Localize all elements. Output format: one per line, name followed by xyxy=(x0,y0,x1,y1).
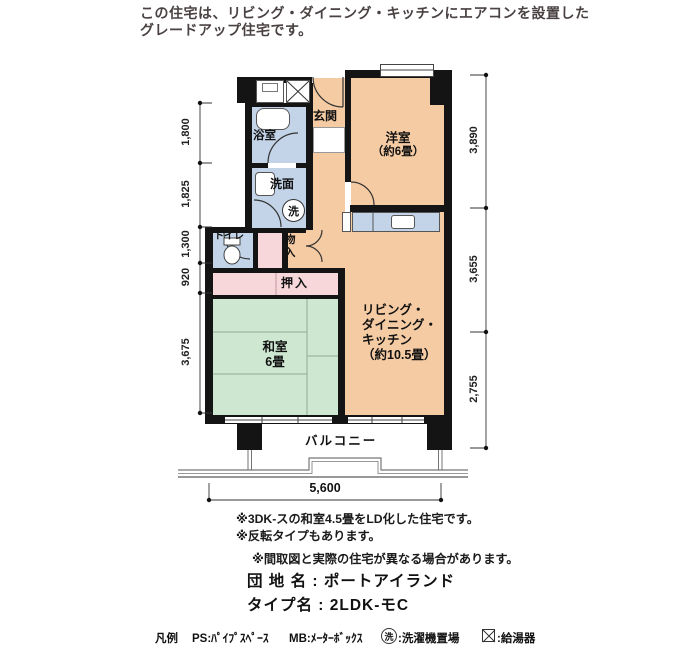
pillar-bottom-right xyxy=(427,420,452,450)
wall-segment xyxy=(250,228,306,233)
label-oshiire: 押入 xyxy=(281,276,309,290)
bathtub xyxy=(256,108,290,130)
dim-right-2: 3,655 xyxy=(468,247,480,291)
note-1: ※3DK-スの和室4.5畳をLD化した住宅です。 xyxy=(236,509,479,527)
legend-ps: PS:ﾊﾟｲﾌﾟｽﾍﾟｰｽ xyxy=(192,630,269,646)
label-washroom: 洗面 xyxy=(270,177,294,191)
dim-right-3: 2,755 xyxy=(468,367,480,411)
legend-water-heater: :給湯器 xyxy=(497,630,535,646)
estate-name: 団 地 名 : ポートアイランド xyxy=(247,569,455,591)
dim-bottom: 5,600 xyxy=(297,481,353,496)
legend-mb: MB:ﾒｰﾀｰﾎﾞｯｸｽ xyxy=(289,630,362,646)
water-heater-box xyxy=(286,80,310,103)
wall-tatami-ldk xyxy=(338,268,345,420)
dim-right-1: 3,890 xyxy=(468,118,480,162)
pipe-space-box xyxy=(342,212,351,232)
label-toilet: トイレ xyxy=(214,231,244,243)
wall-left-lower xyxy=(205,227,213,422)
label-bath: 浴室 xyxy=(253,130,276,144)
balcony-railing xyxy=(178,450,468,477)
entrance-floor xyxy=(313,127,345,153)
label-storage: 物 入 xyxy=(283,234,297,260)
legend-washing-machine-icon: 洗 xyxy=(381,628,397,644)
dim-left-4: 920 xyxy=(180,255,192,299)
wall-segment xyxy=(296,163,306,168)
wall-segment xyxy=(252,103,313,107)
label-balcony: バルコニー xyxy=(305,434,377,449)
label-entrance: 玄関 xyxy=(313,109,345,123)
legend-title: 凡例 xyxy=(155,630,178,646)
closet-monoire xyxy=(258,232,282,268)
wall-segment xyxy=(253,233,258,268)
description-line-2: グレードアップ住宅です。 xyxy=(140,20,313,40)
dim-left-1: 1,800 xyxy=(180,110,192,154)
note-3: ※間取図と実際の住宅が異なる場合があります。 xyxy=(252,549,519,567)
label-ldk: リビング・ ダイニング・ キッチン （約10.5畳） xyxy=(362,303,437,363)
wall-right xyxy=(444,70,452,425)
dim-left-5: 3,675 xyxy=(180,330,192,374)
legend-washing-machine: :洗濯機置場 xyxy=(398,630,459,646)
legend-water-heater-icon xyxy=(482,629,495,642)
wall-segment xyxy=(213,295,345,299)
pillar-top-left xyxy=(237,77,257,103)
meter-box-inner xyxy=(262,83,278,92)
wall-segment xyxy=(252,163,268,168)
hall xyxy=(313,78,345,230)
pillar-bottom-left xyxy=(237,420,262,450)
wall-left-upper xyxy=(245,103,252,229)
wall-western-ldk xyxy=(350,205,444,212)
dim-left-2: 1,825 xyxy=(180,172,192,216)
label-tatami-room: 和室 6畳 xyxy=(245,340,305,370)
note-2: ※反転タイプもあります。 xyxy=(236,526,381,544)
wall-hall-western xyxy=(345,78,351,182)
window-ldk xyxy=(348,417,424,423)
wall-segment xyxy=(205,268,345,273)
washing-machine-symbol: 洗 xyxy=(282,199,305,222)
window-western xyxy=(380,64,434,77)
kitchen-sink xyxy=(391,215,415,229)
closet-oshiire xyxy=(213,273,338,295)
window-tatami xyxy=(225,417,332,423)
floor-plan-page: この住宅は、リビング・ダイニング・キッチンにエアコンを設置した グレードアップ住… xyxy=(0,0,700,650)
label-western-room: 洋室 （約6畳） xyxy=(352,131,444,160)
estate-type: タイプ名 : 2LDK-モC xyxy=(247,593,409,615)
